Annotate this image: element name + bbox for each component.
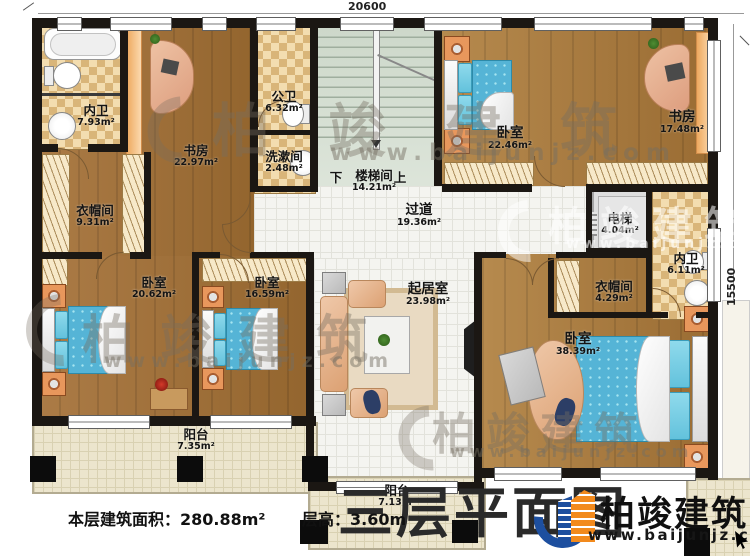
floor-plan: 20600 15500 [0, 0, 750, 556]
wardrobe [556, 260, 580, 314]
stair-down-label: 下 [330, 171, 343, 185]
floor-height-text: 层高：3.60m [302, 506, 406, 530]
watermark-url: www.baijunjz.com [104, 350, 394, 372]
wall [696, 312, 712, 318]
window [340, 17, 394, 31]
wardrobe [42, 258, 68, 286]
bath-partition [40, 93, 124, 96]
window [707, 40, 721, 152]
bed-pillow [668, 392, 690, 440]
small-table [150, 388, 188, 410]
window [202, 17, 227, 31]
plant [150, 34, 160, 44]
watermark-url: www.baijunjz.com [566, 236, 750, 252]
window [68, 415, 150, 429]
wall [32, 252, 102, 259]
window [210, 415, 292, 429]
toilet [53, 62, 81, 89]
window [684, 17, 704, 31]
wall [482, 252, 506, 258]
side-table [322, 394, 346, 416]
computer-monitor [161, 58, 180, 75]
room-label-hallway: 过道19.36m² [397, 203, 441, 229]
red-vase [155, 378, 168, 391]
room-label-stairwell: 楼梯间14.21m² [352, 169, 396, 194]
room-label-bedroom-bl1: 卧室20.62m² [132, 276, 176, 301]
room-label-livingroom: 起居室23.98m² [406, 282, 450, 308]
wall [120, 18, 128, 152]
bathtub [44, 28, 122, 60]
room-label-bath-left: 内卫7.93m² [77, 104, 115, 129]
terrace-strip-right [722, 300, 750, 480]
wall [586, 184, 712, 192]
pillar [302, 456, 328, 482]
wall [130, 252, 151, 259]
dimension-top-value: 20600 [348, 0, 386, 13]
wall [548, 312, 668, 318]
wall [88, 144, 124, 152]
window [57, 17, 82, 31]
wall [556, 252, 652, 258]
corner-tick-left [23, 2, 34, 10]
dimension-right-value: 15500 [725, 246, 738, 306]
room-label-balcony-left: 阳台7.35m² [177, 428, 215, 453]
brand-url: www.baijunjz.com [588, 526, 750, 544]
plant [648, 38, 659, 49]
nightstand [42, 372, 66, 396]
wall [144, 152, 151, 258]
floor-area-text: 本层建筑面积：280.88m² [68, 506, 265, 530]
corner-tick-right [740, 36, 750, 46]
window [424, 17, 502, 31]
side-table [322, 272, 346, 294]
bathtub-basin [50, 33, 116, 56]
room-label-bedroom-bl2: 卧室16.59m² [245, 276, 289, 301]
logo-building-blue [558, 496, 572, 542]
window [256, 17, 296, 31]
wall [250, 252, 314, 258]
dimension-line-top [38, 13, 744, 14]
wall [32, 144, 58, 152]
room-label-master-bedroom: 卧室38.39m² [556, 332, 600, 358]
nightstand [444, 36, 470, 62]
room-label-bath-right: 内卫6.11m² [667, 252, 705, 277]
stair-up-label: 上 [394, 171, 407, 185]
bed-pillow [668, 340, 690, 388]
window [534, 17, 652, 31]
wall [192, 252, 220, 258]
wall [250, 186, 318, 192]
floor-balcony-left [32, 422, 318, 494]
room-label-closet-master: 衣帽间4.29m² [595, 280, 633, 305]
sink [48, 112, 76, 140]
pillar [177, 456, 203, 482]
bed-headboard [692, 336, 708, 442]
pillar [30, 456, 56, 482]
watermark-url: www.baijunjz.com [450, 442, 693, 461]
nightstand [684, 306, 710, 332]
wall [442, 184, 532, 192]
window [110, 17, 172, 31]
watermark-url: www.baijunjz.com [330, 140, 677, 166]
room-label-closet-left: 衣帽间9.31m² [76, 204, 114, 229]
wall [32, 18, 42, 426]
